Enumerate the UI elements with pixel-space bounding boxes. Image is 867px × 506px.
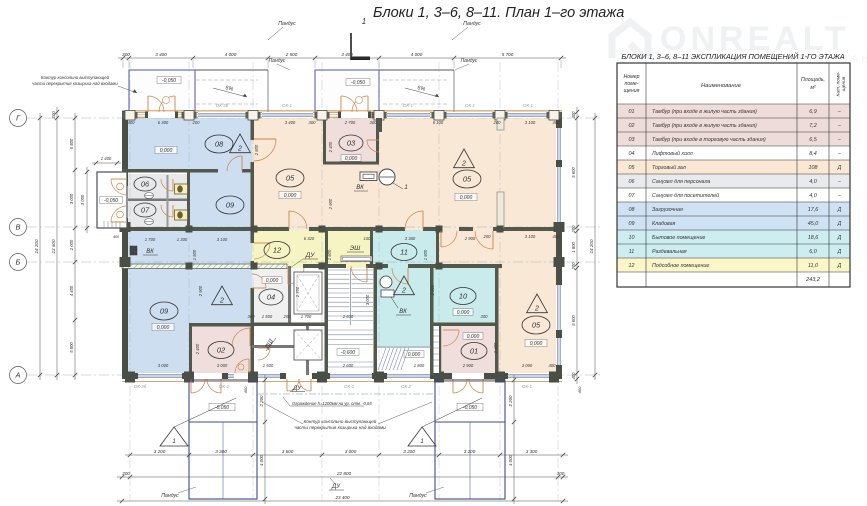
svg-text:108: 108	[809, 165, 818, 171]
svg-text:05: 05	[463, 175, 472, 184]
svg-text:ОК-3б: ОК-3б	[134, 384, 147, 389]
svg-text:2 000: 2 000	[69, 239, 74, 251]
svg-text:400: 400	[571, 111, 576, 119]
svg-text:3 200: 3 200	[403, 449, 415, 454]
svg-text:Пандус: Пандус	[463, 21, 481, 27]
svg-text:300: 300	[557, 471, 565, 476]
svg-text:ВК: ВК	[146, 249, 154, 255]
svg-text:4,0: 4,0	[809, 193, 817, 199]
svg-text:09: 09	[629, 221, 635, 227]
svg-text:Площадь,: Площадь,	[801, 77, 825, 83]
svg-text:45,0: 45,0	[808, 221, 819, 227]
svg-text:1 700: 1 700	[145, 237, 156, 242]
svg-text:Блоки 1, 3–6, 8–11. План 1: Блоки 1, 3–6, 8–11. План 1–го этажа	[373, 5, 624, 21]
svg-text:300: 300	[51, 111, 56, 119]
svg-text:400: 400	[549, 363, 557, 368]
svg-text:Номер: Номер	[624, 74, 640, 80]
svg-text:300: 300	[481, 314, 489, 319]
svg-text:1 800: 1 800	[423, 249, 428, 260]
svg-text:1 800: 1 800	[414, 363, 425, 368]
svg-text:400: 400	[553, 120, 561, 125]
svg-text:ОК-2: ОК-2	[344, 384, 354, 389]
svg-text:0,000: 0,000	[266, 278, 279, 284]
svg-text:09: 09	[160, 307, 169, 316]
svg-text:06: 06	[629, 179, 635, 185]
svg-text:Подсобное помещение: Подсобное помещение	[652, 263, 709, 269]
svg-text:3 000: 3 000	[217, 363, 228, 368]
svg-text:400: 400	[243, 386, 248, 393]
svg-text:100: 100	[364, 236, 372, 241]
svg-text:-0,050: -0,050	[351, 80, 365, 86]
svg-text:ОК-2: ОК-2	[219, 384, 229, 389]
svg-text:4 000: 4 000	[508, 454, 513, 466]
svg-text:части перекрытия козырька над: части перекрытия козырька над входами	[32, 81, 118, 86]
svg-text:Д: Д	[837, 221, 842, 227]
svg-text:3 300: 3 300	[215, 449, 227, 454]
svg-text:6 300: 6 300	[158, 120, 169, 125]
svg-text:3 000: 3 000	[80, 194, 85, 205]
svg-text:18,6: 18,6	[808, 235, 819, 241]
svg-text:2 400: 2 400	[493, 342, 498, 354]
svg-text:В: В	[15, 223, 20, 232]
svg-text:2: 2	[461, 161, 466, 168]
svg-text:12: 12	[273, 246, 282, 255]
svg-text:2 900: 2 900	[198, 285, 203, 297]
svg-text:300: 300	[122, 52, 130, 57]
svg-text:1 500: 1 500	[262, 314, 273, 319]
svg-text:Б: Б	[16, 258, 21, 267]
svg-text:1 500: 1 500	[263, 363, 274, 368]
svg-text:2 800: 2 800	[254, 144, 259, 156]
svg-text:11,0: 11,0	[808, 263, 818, 269]
svg-text:07: 07	[141, 206, 150, 215]
svg-text:3 000: 3 000	[522, 363, 533, 368]
svg-text:Санузел для посетителей: Санузел для посетителей	[652, 192, 719, 199]
svg-text:1: 1	[420, 438, 424, 445]
svg-text:5 600: 5 600	[571, 315, 576, 326]
svg-text:–: –	[837, 109, 841, 115]
svg-text:-0,050: -0,050	[162, 78, 176, 84]
svg-text:2 900: 2 900	[430, 284, 435, 296]
svg-text:300: 300	[309, 120, 317, 125]
svg-text:Д: Д	[837, 263, 842, 269]
svg-text:3 000: 3 000	[158, 363, 169, 368]
svg-text:Пандус: Пандус	[161, 493, 179, 499]
svg-text:7,2: 7,2	[809, 123, 817, 129]
svg-text:2: 2	[237, 146, 242, 153]
svg-text:Тамбур (при входе в жилую част: Тамбур (при входе в жилую часть здания)	[652, 123, 757, 129]
svg-text:09: 09	[226, 201, 235, 210]
svg-text:300: 300	[248, 314, 256, 319]
svg-text:200: 200	[192, 120, 201, 125]
svg-text:Пандус: Пандус	[461, 58, 478, 64]
svg-text:23 400: 23 400	[334, 495, 349, 500]
svg-text:Лифтовый холл: Лифтовый холл	[651, 150, 693, 157]
svg-text:Торговый зал: Торговый зал	[652, 164, 686, 171]
svg-text:Д: Д	[837, 249, 842, 255]
svg-text:200: 200	[571, 225, 576, 234]
svg-text:Кладовая: Кладовая	[652, 221, 676, 227]
svg-text:4 000: 4 000	[259, 454, 264, 466]
svg-text:ВК: ВК	[356, 185, 364, 191]
svg-text:2 400: 2 400	[328, 141, 333, 153]
svg-text:ОК-3б: ОК-3б	[216, 103, 229, 108]
svg-text:3 000: 3 000	[345, 449, 357, 454]
svg-text:0,000: 0,000	[460, 195, 473, 201]
svg-text:01: 01	[629, 109, 635, 115]
svg-text:8,4: 8,4	[809, 151, 817, 157]
svg-text:3 380: 3 380	[405, 236, 416, 241]
svg-text:300: 300	[122, 471, 130, 476]
svg-text:ОК-1: ОК-1	[282, 103, 292, 108]
svg-text:ЭШ: ЭШ	[350, 245, 361, 252]
svg-text:2: 2	[219, 298, 224, 305]
svg-text:–: –	[837, 193, 841, 199]
svg-text:4 000: 4 000	[411, 52, 423, 57]
svg-text:2 600: 2 600	[342, 363, 354, 368]
svg-text:01: 01	[470, 347, 478, 356]
svg-text:2 200: 2 200	[259, 395, 264, 408]
svg-text:22 800: 22 800	[336, 471, 351, 476]
svg-text:12: 12	[629, 263, 635, 269]
svg-text:243,2: 243,2	[805, 277, 821, 283]
svg-text:ОК-1: ОК-1	[523, 103, 533, 108]
svg-text:ОК-2: ОК-2	[401, 384, 411, 389]
svg-text:17,6: 17,6	[808, 207, 819, 213]
svg-text:0,000: 0,000	[345, 156, 358, 162]
svg-text:Пандус: Пандус	[278, 21, 296, 27]
svg-text:Пандус: Пандус	[409, 493, 427, 499]
svg-text:Бытовое помещение: Бытовое помещение	[652, 235, 705, 241]
svg-text:А: А	[14, 371, 20, 380]
svg-text:0,000: 0,000	[284, 193, 297, 199]
svg-text:14 200: 14 200	[589, 239, 594, 253]
svg-text:1 400: 1 400	[101, 156, 112, 161]
svg-text:03: 03	[347, 139, 356, 148]
svg-text:400: 400	[113, 235, 120, 239]
svg-text:Наименование: Наименование	[701, 83, 742, 89]
svg-text:Тамбур (при входе в жилую част: Тамбур (при входе в жилую часть здания)	[652, 109, 757, 115]
svg-text:2: 2	[534, 306, 539, 313]
svg-text:11: 11	[400, 248, 408, 257]
svg-text:200: 200	[571, 262, 576, 271]
svg-text:1 800: 1 800	[192, 249, 197, 260]
svg-text:0,000: 0,000	[157, 325, 170, 331]
svg-text:5 800: 5 800	[69, 138, 74, 149]
svg-text:1 300: 1 300	[177, 237, 188, 242]
svg-text:Контур консольно выступающей: Контур консольно выступающей	[304, 418, 377, 424]
svg-text:04: 04	[267, 293, 275, 302]
svg-text:0,000: 0,000	[467, 334, 480, 340]
svg-text:06: 06	[141, 180, 150, 189]
svg-text:08: 08	[629, 207, 635, 213]
svg-text:Загрузочная: Загрузочная	[652, 207, 683, 213]
svg-text:Д: Д	[837, 165, 842, 171]
svg-text:5 600: 5 600	[571, 167, 576, 178]
svg-text:4 000: 4 000	[225, 52, 237, 57]
svg-text:Д: Д	[837, 207, 842, 213]
svg-text:3 000: 3 000	[69, 193, 74, 204]
svg-text:части перекрытия козырька над: части перекрытия козырька над входами	[294, 425, 386, 430]
svg-text:03: 03	[629, 137, 635, 143]
svg-text:6 320: 6 320	[304, 236, 315, 241]
svg-text:04: 04	[629, 151, 635, 157]
svg-text:6 100: 6 100	[433, 120, 444, 125]
svg-text:400: 400	[577, 386, 582, 393]
svg-text:3 200: 3 200	[154, 449, 166, 454]
svg-text:200: 200	[493, 120, 502, 125]
svg-text:2 400: 2 400	[195, 343, 200, 355]
svg-text:2 900: 2 900	[462, 363, 474, 368]
svg-text:2 900: 2 900	[464, 236, 476, 241]
svg-text:14 200: 14 200	[34, 239, 39, 253]
svg-text:Раздевальная: Раздевальная	[652, 249, 687, 255]
svg-text:200: 200	[483, 234, 492, 239]
svg-text:-0,600: -0,600	[341, 350, 355, 356]
svg-text:поме-: поме-	[625, 81, 639, 87]
svg-text:2 700: 2 700	[295, 286, 300, 298]
svg-text:07: 07	[629, 193, 636, 199]
svg-text:ДУ: ДУ	[305, 252, 316, 259]
svg-text:Контур консольно выступающей: Контур консольно выступающей	[41, 75, 110, 80]
svg-text:08: 08	[215, 140, 224, 149]
svg-text:ВК: ВК	[399, 309, 407, 315]
svg-text:3 300: 3 300	[526, 449, 538, 454]
svg-text:-0,050: -0,050	[104, 198, 118, 204]
svg-text:2 500: 2 500	[285, 52, 298, 57]
svg-text:6,9: 6,9	[809, 109, 817, 115]
svg-text:щения: щения	[624, 88, 640, 94]
svg-text:5 800: 5 800	[69, 342, 74, 353]
svg-text:2: 2	[401, 288, 406, 295]
svg-text:0,000: 0,000	[457, 310, 470, 316]
svg-text:–: –	[837, 137, 841, 143]
svg-text:1: 1	[404, 184, 408, 191]
svg-text:3 100: 3 100	[217, 237, 228, 242]
svg-text:Ограждение h=1200мм на ур. отм: Ограждение h=1200мм на ур. отм. -0,65	[292, 401, 372, 406]
svg-text:Санузел для персонала: Санузел для персонала	[652, 179, 710, 185]
svg-text:1 700: 1 700	[301, 314, 312, 319]
svg-text:6,0: 6,0	[809, 249, 817, 255]
svg-text:200: 200	[283, 314, 292, 319]
svg-text:10: 10	[629, 235, 635, 241]
svg-text:1: 1	[172, 438, 176, 445]
svg-text:БЛОКИ 1, 3–6, 8–11 ЭКСПЛИКАЦ: БЛОКИ 1, 3–6, 8–11 ЭКСПЛИКАЦИЯ ПОМЕЩЕНИЙ…	[621, 52, 844, 61]
svg-text:4,0: 4,0	[809, 179, 817, 185]
svg-text:10: 10	[459, 292, 468, 301]
svg-text:3 100: 3 100	[525, 120, 536, 125]
svg-text:–: –	[837, 179, 841, 185]
svg-text:–: –	[837, 151, 841, 157]
svg-text:05: 05	[286, 174, 295, 183]
svg-text:6,5: 6,5	[809, 137, 817, 143]
svg-text:0,000: 0,000	[408, 352, 421, 358]
svg-text:02: 02	[629, 123, 635, 129]
svg-text:300: 300	[370, 120, 378, 125]
svg-text:2 900: 2 900	[328, 198, 333, 210]
svg-text:ДУ: ДУ	[292, 386, 302, 392]
svg-text:5 700: 5 700	[502, 52, 514, 57]
svg-text:400: 400	[128, 120, 136, 125]
svg-text:2 700: 2 700	[344, 120, 356, 125]
svg-text:ОК-1: ОК-1	[403, 103, 413, 108]
svg-text:Д: Д	[837, 235, 842, 241]
svg-text:3 400: 3 400	[285, 120, 296, 125]
svg-text:Кат. поме-: Кат. поме-	[836, 71, 842, 96]
svg-text:02: 02	[217, 346, 226, 355]
svg-text:3 000: 3 000	[365, 294, 370, 305]
svg-text:3 400: 3 400	[155, 52, 167, 57]
svg-text:1: 1	[362, 17, 366, 26]
svg-text:400: 400	[553, 234, 561, 239]
svg-text:05: 05	[629, 165, 636, 171]
svg-text:щения: щения	[842, 76, 847, 91]
svg-text:3 200: 3 200	[464, 449, 476, 454]
svg-text:Пандус: Пандус	[269, 58, 286, 64]
svg-text:2 200: 2 200	[508, 395, 513, 408]
svg-text:13 600: 13 600	[51, 239, 56, 253]
svg-text:Тамбур (при входе в торговую ч: Тамбур (при входе в торговую часть здани…	[652, 137, 766, 143]
svg-text:-0,050: -0,050	[215, 405, 229, 411]
svg-text:2 600: 2 600	[342, 314, 354, 319]
svg-text:3 600: 3 600	[282, 449, 294, 454]
svg-text:4 400: 4 400	[69, 285, 74, 296]
svg-text:0,000: 0,000	[530, 341, 543, 347]
svg-text:1 800: 1 800	[571, 242, 576, 253]
svg-text:3 400: 3 400	[341, 52, 353, 57]
svg-text:0,000: 0,000	[160, 148, 173, 154]
svg-text:ОК-1: ОК-1	[522, 384, 532, 389]
svg-text:3 100: 3 100	[525, 234, 536, 239]
svg-text:1 800: 1 800	[327, 249, 332, 260]
svg-text:05: 05	[532, 321, 541, 330]
svg-text:ОК-1: ОК-1	[465, 103, 475, 108]
svg-text:11: 11	[629, 249, 635, 255]
svg-text:м²: м²	[810, 85, 816, 91]
svg-text:–: –	[837, 123, 841, 129]
svg-text:400: 400	[571, 372, 576, 380]
